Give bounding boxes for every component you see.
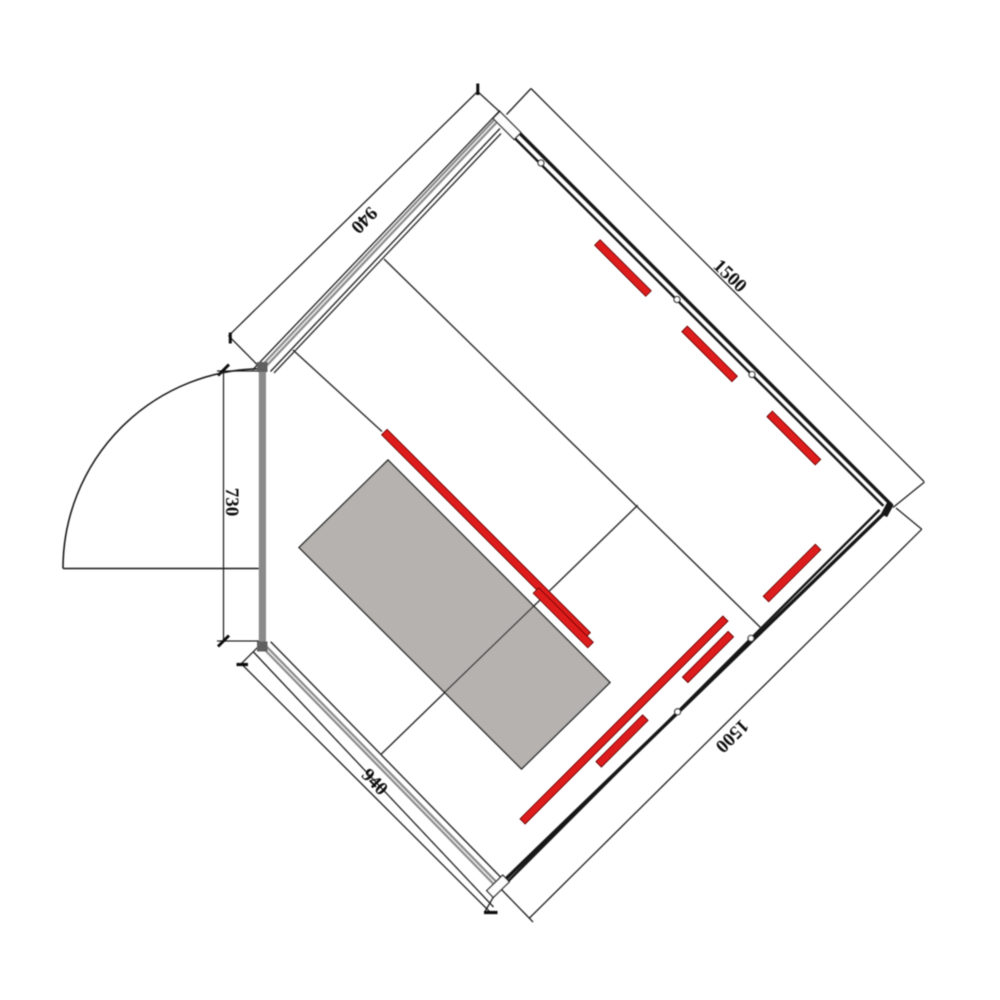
svg-text:730: 730 — [221, 488, 242, 517]
